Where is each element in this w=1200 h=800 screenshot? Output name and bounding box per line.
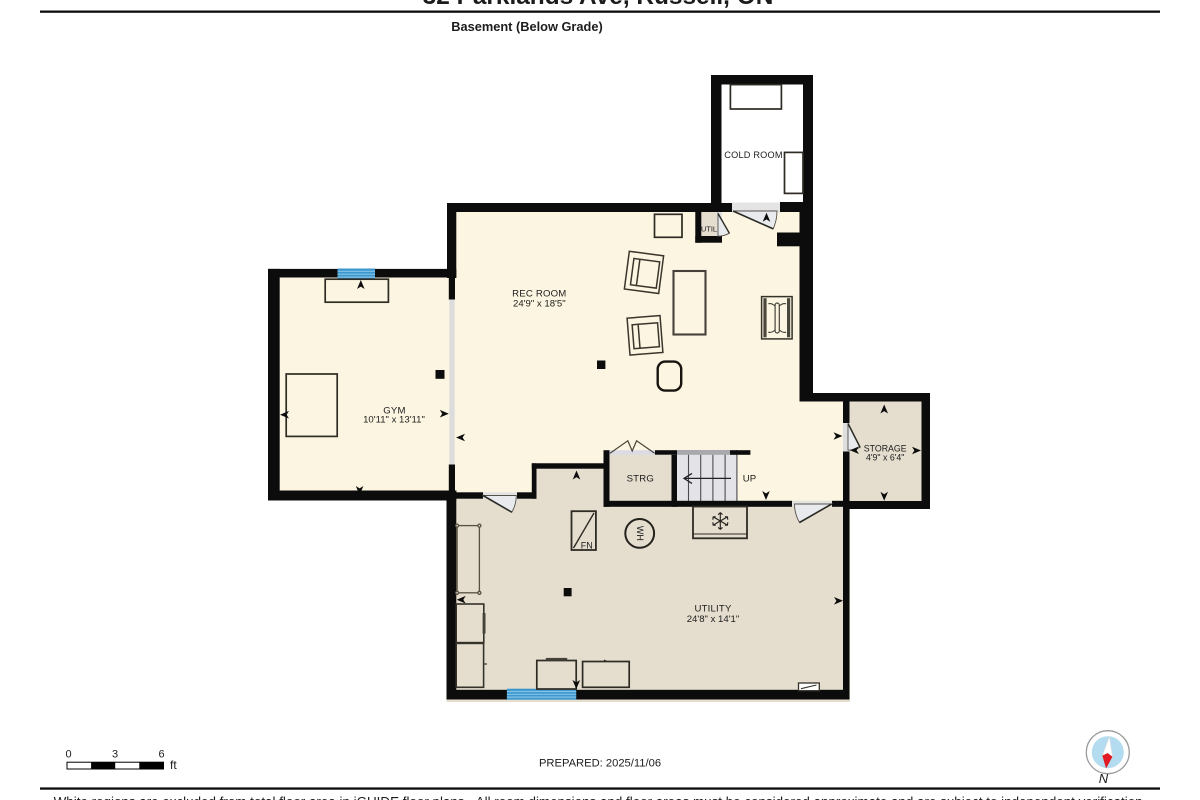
svg-text:UTIL: UTIL [701,225,717,234]
svg-text:N: N [1099,771,1109,786]
svg-text:3: 3 [112,749,118,761]
svg-text:10'11" x 13'11": 10'11" x 13'11" [363,415,425,426]
svg-text:UP: UP [743,474,756,485]
svg-text:24'9" x 18'5": 24'9" x 18'5" [513,298,566,309]
svg-text:FN: FN [581,540,593,550]
svg-text:0: 0 [65,749,71,761]
svg-text:24'8" x 14'1": 24'8" x 14'1" [687,614,740,625]
svg-text:WH: WH [635,526,645,541]
svg-text:White regions are excluded fro: White regions are excluded from total fl… [54,794,1147,800]
svg-text:Basement (Below Grade): Basement (Below Grade) [451,19,602,34]
svg-text:6: 6 [158,749,164,761]
svg-text:PREPARED: 2025/11/06: PREPARED: 2025/11/06 [539,758,661,770]
svg-text:UTILITY: UTILITY [694,603,732,614]
svg-text:COLD ROOM: COLD ROOM [724,150,782,160]
svg-text:4'9" x 6'4": 4'9" x 6'4" [866,452,904,462]
svg-text:ft: ft [170,758,177,772]
svg-text:STRG: STRG [627,474,654,485]
svg-text:32 Parklands Ave, Russell, ON: 32 Parklands Ave, Russell, ON [423,0,774,10]
